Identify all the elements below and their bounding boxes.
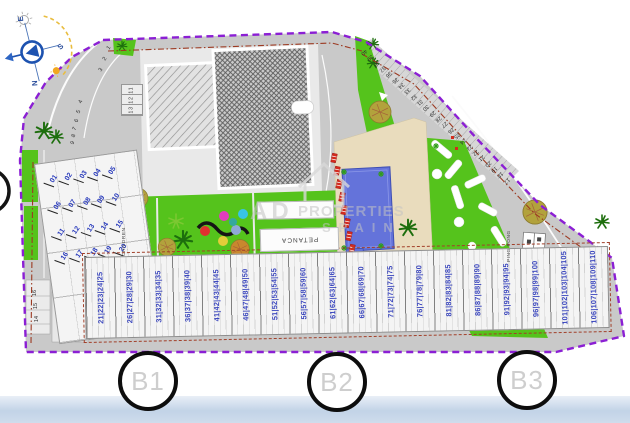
garage-number-group: 106|107|108|109|110 [578, 247, 609, 328]
grid-bubble-partial [0, 169, 9, 213]
petanca-label: PETANCA [281, 236, 318, 244]
petanca-court-labelled: PETANCA [260, 227, 340, 252]
garage-number-group: 51|52|53|54|55 [259, 254, 290, 335]
garage-number-group: 31|32|33|34|35 [143, 256, 174, 337]
garage-number-group: 26|27|28|29|30 [114, 257, 145, 338]
parking-number: 13 12 11 [129, 86, 135, 113]
garage-band: 21|22|23|24|2526|27|28|29|3031|32|33|34|… [84, 246, 610, 339]
petanca-court [257, 200, 334, 219]
compass-letter-n: N [30, 80, 39, 86]
garage-number-group: 71|72|73|74|75 [375, 251, 406, 332]
garage-number-group: 76|77|78|79|80 [404, 251, 435, 332]
parking-number: 14 [34, 313, 40, 325]
parking-number: 15 [33, 300, 39, 312]
grid-bubble-b3: B3 [497, 350, 557, 410]
garage-number-group: 66|67|68|69|70 [346, 252, 377, 333]
parking-number: 16 [32, 287, 38, 299]
compass-letter-e: E [16, 16, 25, 22]
grid-bubble-b2: B2 [307, 352, 367, 412]
grid-bubble-label: B2 [320, 367, 354, 398]
garage-number-group: 21|22|23|24|25 [85, 257, 116, 338]
unit-number: 10 [109, 189, 129, 209]
garage-number-group: 101|102|103|104|105 [549, 248, 580, 329]
unit-number-row: 0607080910 [52, 192, 127, 216]
parking-block-11-13: 13 12 11 [121, 84, 143, 116]
garage-number-group: 86|87|88|89|90 [462, 249, 493, 330]
garage-number-group: 36|37|38|39|40 [172, 256, 203, 337]
grid-bubble-label: B1 [131, 366, 165, 397]
grid-bubble-b1: B1 [118, 351, 178, 411]
garage-number-group: 46|47|48|49|50 [230, 254, 261, 335]
compass-letter-s: S [56, 42, 66, 52]
grid-bubble-label: B3 [510, 365, 544, 396]
unit-number-row: 1112131415 [56, 218, 131, 242]
site-plan-page: E S N 0102030405 0607080910 1112131415 1… [0, 0, 630, 423]
garage-number-group: 81|82|83|84|85 [433, 250, 464, 331]
garage-number-group: 56|57|58|59|60 [288, 253, 319, 334]
garage-number-group: 96|97|98|99|100 [520, 248, 551, 329]
west-arrow [4, 52, 14, 63]
children-area-label: CHILDREN [122, 210, 127, 256]
unit-number: 05 [106, 163, 126, 183]
unit-number-row: 0102030405 [49, 165, 124, 189]
garage-number-group: 61|62|63|64|65 [317, 253, 348, 334]
garage-number-group: 41|42|43|44|45 [201, 255, 232, 336]
ping-pong-label: PING PONG [507, 226, 512, 262]
